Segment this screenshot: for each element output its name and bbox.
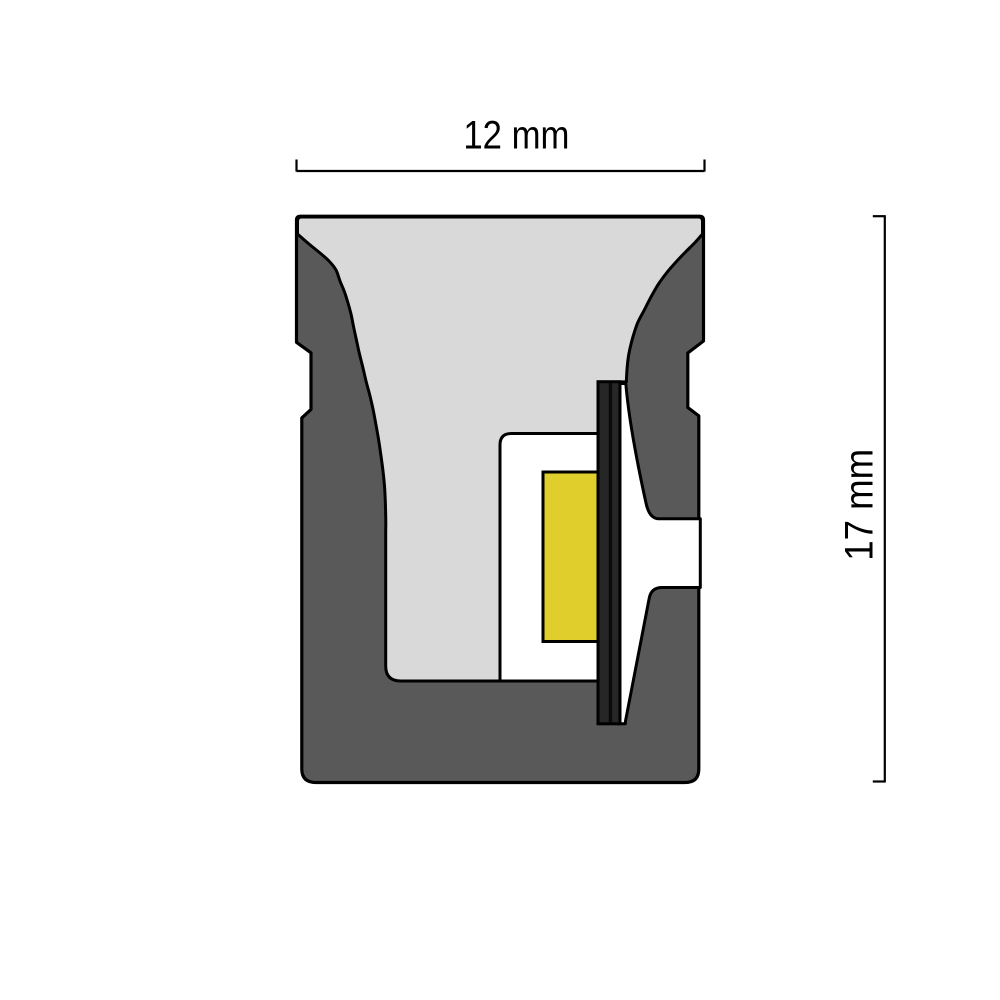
svg-text:17 mm: 17 mm [838, 449, 882, 561]
svg-text:12 mm: 12 mm [463, 114, 569, 158]
